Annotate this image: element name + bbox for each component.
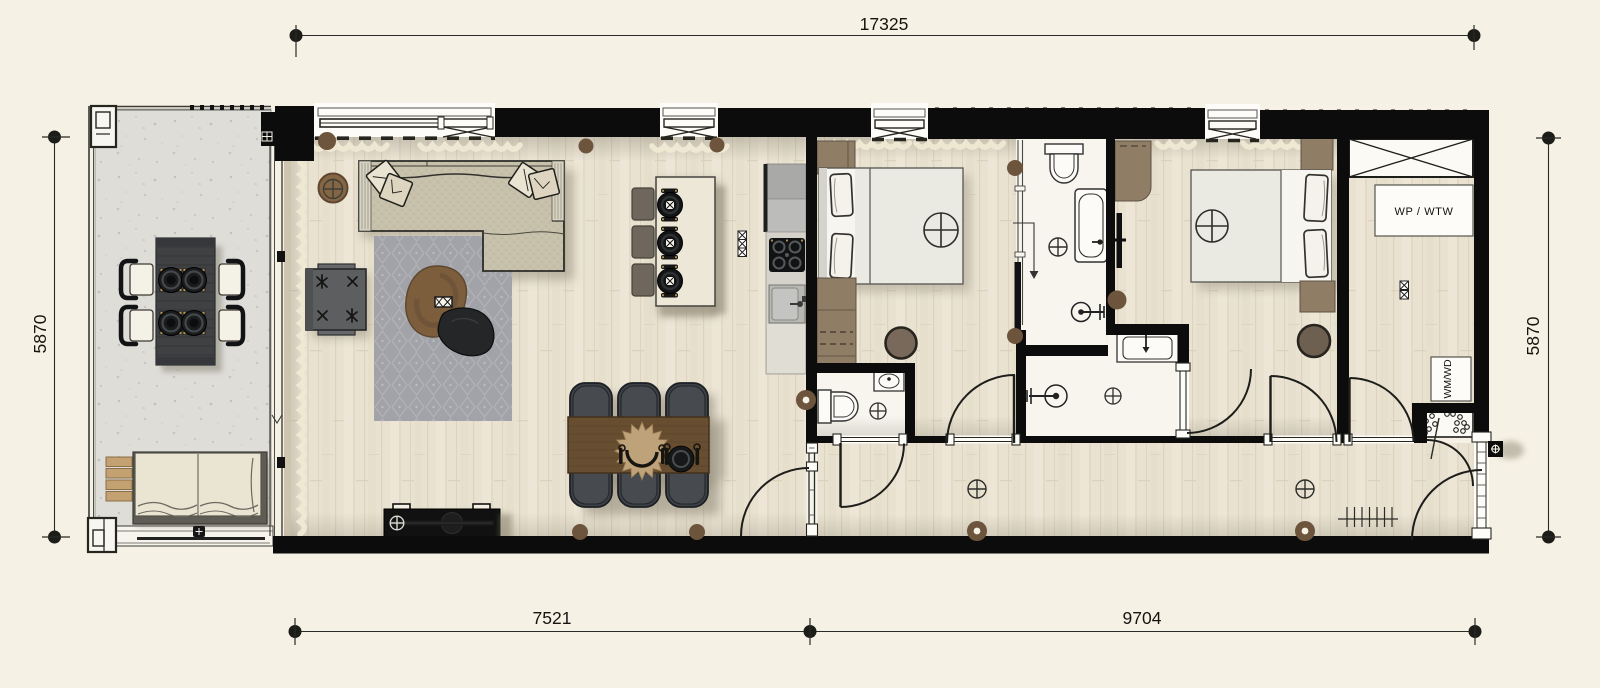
svg-text:WP / WTW: WP / WTW	[1395, 206, 1454, 218]
svg-text:WM/WD: WM/WD	[1442, 359, 1454, 398]
svg-text:17325: 17325	[860, 14, 909, 34]
svg-text:5870: 5870	[30, 314, 50, 353]
svg-text:7521: 7521	[533, 608, 572, 628]
svg-text:5870: 5870	[1523, 316, 1543, 355]
svg-text:9704: 9704	[1123, 608, 1162, 628]
